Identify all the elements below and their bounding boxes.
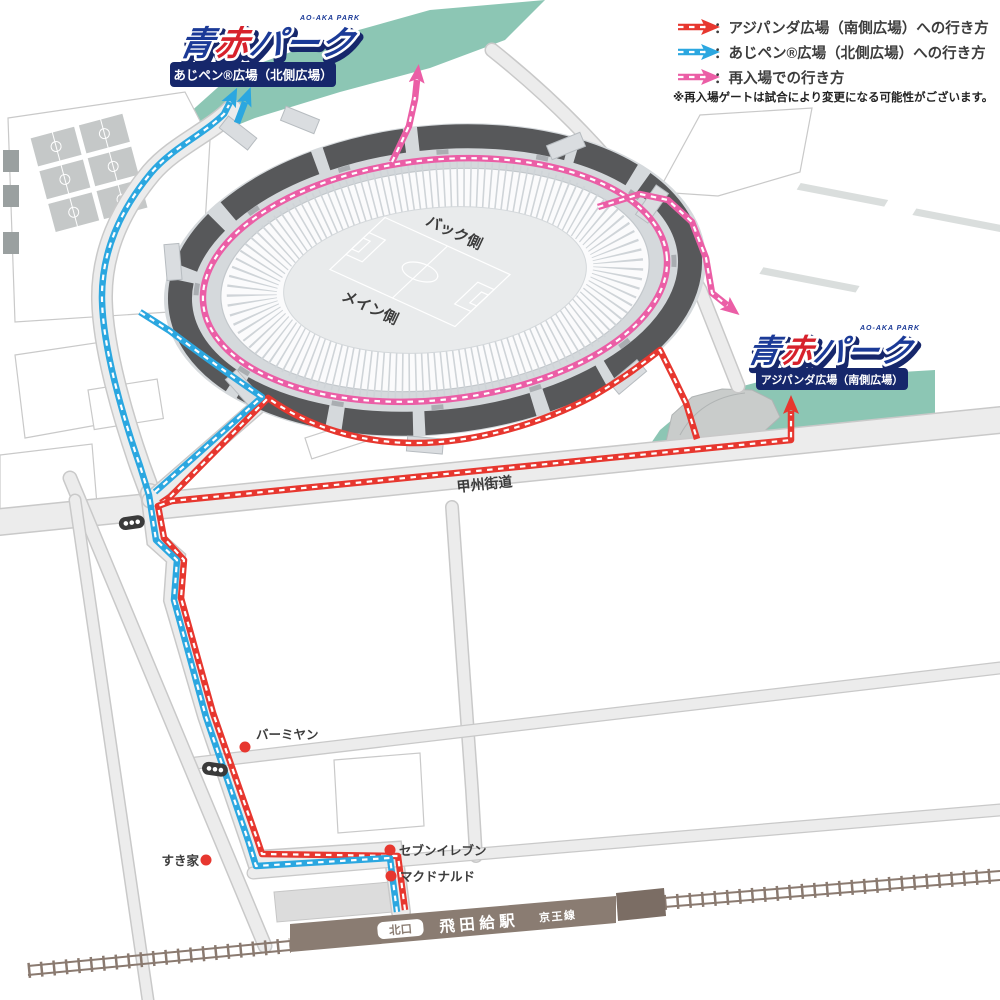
seven-eleven-label: セブンイレブン [399, 843, 487, 858]
aoaka-logo-small: AO-AKA PARK [299, 15, 360, 22]
bamiyan-dot [240, 742, 251, 753]
mcdonalds-dot [386, 871, 397, 882]
south-plaza-label: アジパンダ広場（南側広場） [761, 373, 903, 387]
small-court-icon [3, 150, 19, 172]
sukiya-label: すき家 [161, 853, 199, 868]
seven-eleven-dot [385, 845, 396, 856]
legend-reentry-label: ：再入場での行き方 [714, 69, 845, 87]
north-plaza-label: あじペン®広場（北側広場） [173, 68, 332, 83]
aoaka-logo-small: AO-AKA PARK [859, 325, 920, 332]
small-court-icon [3, 185, 19, 207]
aoaka-logo-text: 青赤パーク [745, 333, 917, 369]
legend-note: ※再入場ゲートは試合により変更になる可能性がございます。 [673, 90, 993, 104]
mcdonalds-label: マクドナルド [400, 870, 475, 884]
north-plaza-logo: AO-AKA PARK 青赤パーク 青赤パーク 青赤パーク あじペン®広場（北側… [170, 15, 362, 87]
legend-south-label: ：アジパンダ広場（南側広場）への行き方 [714, 19, 989, 37]
stadium-access-map: 北口 飛田給駅 京王線 バック側 メイン側 [0, 0, 1000, 1000]
seven-eleven-block [334, 753, 424, 833]
sukiya-dot [201, 855, 212, 866]
station-building-block [616, 888, 666, 921]
south-plaza-logo: AO-AKA PARK 青赤パーク 青赤パーク 青赤パーク アジパンダ広場（南側… [744, 325, 920, 390]
legend: ：アジパンダ広場（南側広場）への行き方 ：あじペン®広場（北側広場）への行き方 … [673, 19, 993, 104]
aoaka-logo-text: 青赤パーク [177, 25, 359, 63]
bamiyan-label: バーミヤン [256, 728, 319, 742]
legend-north-label: ：あじペン®広場（北側広場）への行き方 [714, 44, 986, 62]
small-court-icon [3, 232, 19, 254]
